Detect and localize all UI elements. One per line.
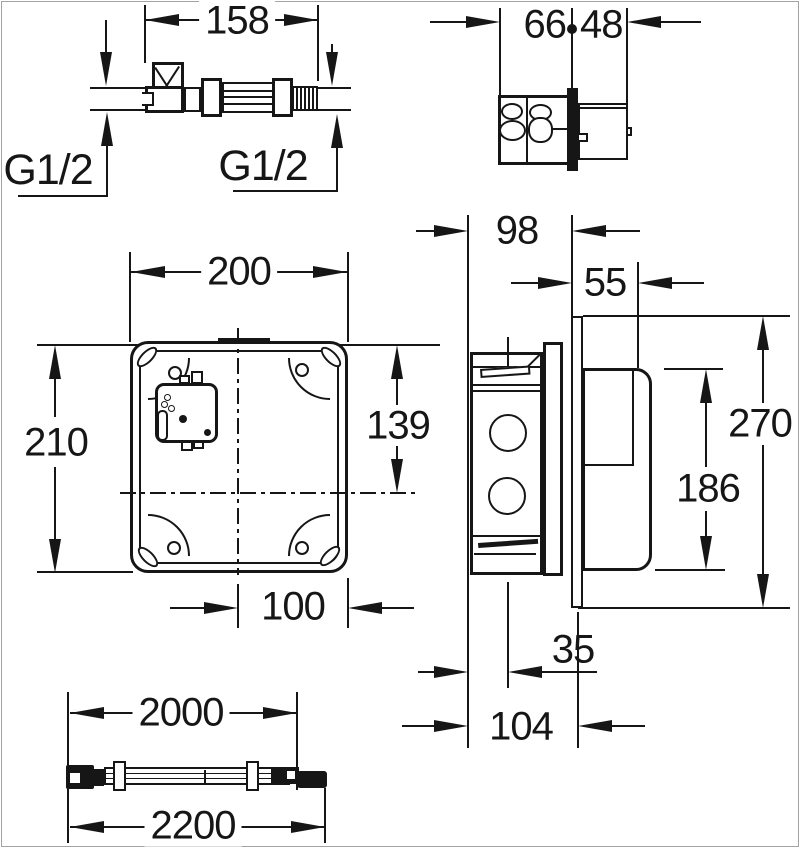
valve-side-port	[142, 92, 154, 106]
hose-seam	[204, 770, 206, 783]
knockout-oval	[499, 120, 526, 141]
dimension-line	[402, 725, 434, 727]
module-slot	[157, 410, 168, 441]
pipe-line	[315, 87, 351, 89]
hose-plug	[297, 771, 327, 788]
dim-arrow	[204, 602, 238, 614]
hose-collar	[92, 769, 104, 786]
box-rear-housing	[578, 103, 628, 160]
hose-clip	[246, 761, 259, 791]
port-center-tick	[507, 337, 509, 366]
module-dot	[179, 415, 187, 423]
reference-line	[664, 368, 723, 370]
dim-arrow	[145, 14, 179, 26]
body-detail-line	[474, 553, 536, 555]
dimension-line	[672, 282, 704, 284]
body-detail-line	[472, 390, 541, 392]
dim-arrow	[291, 821, 325, 833]
connector-rib-line	[224, 96, 272, 98]
leader-arrow	[326, 52, 338, 86]
dim-arrow	[434, 720, 468, 732]
dim-cover-height-label: 186	[676, 469, 740, 510]
port-connector-line	[552, 128, 568, 130]
dim-arrow	[508, 666, 542, 678]
dimension-line	[430, 21, 468, 23]
dim-flange-height-label: 270	[728, 404, 792, 445]
housing-top-line	[580, 107, 626, 109]
dim-extension-line	[571, 8, 573, 88]
dim-arrow	[263, 707, 297, 719]
thread-size-left-label: G1/2	[3, 149, 92, 193]
dimension-line	[606, 230, 640, 232]
dimension-line	[661, 21, 701, 23]
body-detail-line	[472, 535, 541, 537]
body-detail-line	[472, 384, 541, 386]
module-tab	[193, 441, 204, 449]
screw-hole	[295, 363, 309, 377]
dim-arrow	[49, 539, 61, 573]
dim-valve-length-label: 158	[199, 1, 275, 42]
leader-arrow	[101, 112, 113, 146]
top-lip-line	[218, 338, 270, 342]
supply-port	[528, 117, 553, 143]
dim-arrow	[638, 277, 672, 289]
dim-arrow	[70, 821, 104, 833]
thread-hatch	[308, 88, 310, 109]
hex-nut	[201, 78, 222, 117]
dim-arrow	[578, 720, 612, 732]
dim-bottom-offset-label: 100	[261, 587, 325, 628]
dimension-line	[705, 511, 707, 536]
mounting-flange-bar	[567, 88, 578, 171]
dimension-line	[396, 379, 398, 405]
connector-hole	[287, 771, 295, 779]
mounting-plate	[543, 342, 563, 576]
dim-body-depth-label: 98	[496, 211, 539, 252]
dim-front-height-label: 210	[24, 423, 88, 464]
cap-seam-line	[632, 370, 634, 466]
knockout-circle	[489, 414, 527, 452]
leader-underline	[233, 190, 338, 192]
dimension-line	[396, 446, 398, 459]
module-pin	[168, 405, 175, 412]
connector-hole	[70, 773, 80, 783]
hose-inner-line	[106, 773, 288, 774]
thread-hatch	[300, 88, 302, 109]
dimension-line	[762, 350, 764, 403]
pipe-line	[315, 109, 351, 111]
leader-line	[106, 144, 108, 197]
thread-size-right-label: G1/2	[218, 145, 307, 189]
dimension-line	[382, 607, 414, 609]
pipe-line	[90, 109, 146, 111]
dim-extension-line	[347, 252, 349, 342]
leader-line	[105, 20, 107, 54]
dim-arrow	[70, 707, 104, 719]
dim-arrow	[757, 574, 769, 608]
dimension-line	[762, 445, 764, 574]
screw-hole	[295, 541, 309, 555]
module-tab	[181, 441, 193, 451]
corner-arc	[288, 358, 330, 400]
dim-hose-total-label: 2200	[145, 806, 242, 847]
connector-rib-line	[224, 103, 272, 105]
screw-hole	[167, 541, 181, 555]
dim-arrow	[284, 14, 318, 26]
dim-cover-width-label: 55	[584, 263, 627, 304]
leader-line	[336, 146, 338, 191]
cap-seam-line	[584, 464, 634, 466]
dim-arrow	[49, 345, 61, 379]
dim-arrow	[757, 316, 769, 350]
center-line-horizontal	[120, 492, 415, 494]
flange-tab	[577, 133, 588, 142]
hex-nut	[272, 78, 293, 117]
dim-arrow	[466, 16, 500, 28]
dimension-line	[418, 671, 434, 673]
thread-hatch	[296, 88, 298, 109]
dim-arrow	[538, 277, 572, 289]
dim-arrow	[391, 345, 403, 379]
dim-arrow	[348, 602, 382, 614]
dimension-line	[511, 282, 539, 284]
reference-line	[655, 569, 725, 571]
dim-total-depth-label: 104	[489, 707, 553, 748]
thread-hatch	[312, 88, 314, 109]
knockout-oval	[501, 103, 523, 120]
dim-front-width-label: 200	[201, 252, 277, 293]
dim-arrow	[131, 266, 165, 278]
dimension-line	[612, 725, 645, 727]
dim-hose-length-label: 2000	[133, 693, 230, 734]
hose-inner-line	[106, 778, 288, 779]
knockout-circle	[488, 477, 526, 515]
module-dot	[204, 429, 211, 436]
dim-arrow	[700, 536, 712, 570]
dimension-line	[705, 403, 707, 467]
module-pin	[161, 401, 168, 408]
hose-body	[104, 767, 290, 785]
dim-box-rear-depth-label: 48	[580, 5, 623, 46]
dim-extension-line	[324, 788, 326, 843]
connector-rib-line	[224, 90, 272, 92]
dim-module-height-label: 139	[366, 406, 430, 447]
module-pin	[164, 394, 171, 401]
dimension-line	[416, 230, 436, 232]
housing-tab	[626, 127, 632, 136]
leader-arrow	[331, 114, 343, 148]
dim-arrow	[391, 459, 403, 493]
leader-underline	[18, 195, 108, 197]
dim-separator-dot	[567, 24, 577, 34]
leader-arrow	[100, 52, 112, 86]
thread-hatch	[304, 88, 306, 109]
pipe-line	[90, 87, 146, 89]
dimension-line	[170, 607, 204, 609]
dim-arrow	[434, 225, 468, 237]
dim-arrow	[313, 266, 347, 278]
hose-clip	[113, 761, 126, 791]
installation-drawing-canvas: 158 G1/2 G1/2	[0, 0, 800, 848]
cover-cap	[582, 368, 652, 571]
center-line-vertical	[237, 328, 239, 575]
dim-arrow	[700, 369, 712, 403]
dimension-line	[54, 467, 56, 539]
dimension-line	[54, 379, 56, 417]
dim-arrow	[627, 16, 661, 28]
dim-outlet-offset-label: 35	[552, 630, 595, 671]
dim-arrow	[572, 225, 606, 237]
dim-box-front-depth-label: 66	[524, 5, 567, 46]
pipe-fitting	[184, 87, 201, 112]
dim-arrow	[434, 666, 468, 678]
